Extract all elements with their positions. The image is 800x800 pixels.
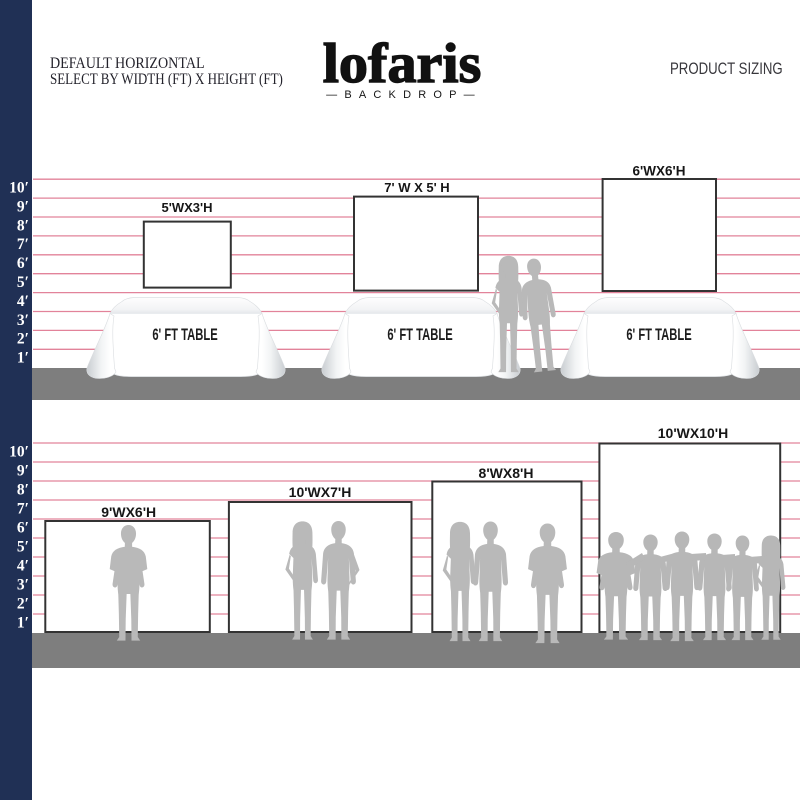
svg-text:5'WX3'H: 5'WX3'H	[162, 200, 213, 215]
svg-text:6' FT TABLE: 6' FT TABLE	[387, 326, 453, 345]
svg-text:8'WX8'H: 8'WX8'H	[479, 465, 534, 481]
svg-text:10'WX10'H: 10'WX10'H	[658, 425, 728, 441]
svg-text:10′: 10′	[9, 180, 29, 197]
svg-text:4′: 4′	[17, 557, 29, 574]
svg-text:1′: 1′	[17, 614, 29, 631]
svg-text:10'WX7'H: 10'WX7'H	[289, 484, 352, 500]
svg-text:6'WX6'H: 6'WX6'H	[633, 164, 686, 179]
svg-text:4′: 4′	[17, 293, 29, 310]
svg-text:10′: 10′	[9, 443, 29, 460]
svg-text:5′: 5′	[17, 538, 29, 555]
svg-text:6' FT TABLE: 6' FT TABLE	[626, 326, 692, 345]
svg-text:PRODUCT SIZING: PRODUCT SIZING	[670, 60, 783, 79]
svg-text:7' W X 5' H: 7' W X 5' H	[384, 180, 449, 195]
svg-text:6′: 6′	[17, 255, 29, 272]
svg-text:8′: 8′	[17, 217, 29, 234]
svg-text:DEFAULT HORIZONTAL: DEFAULT HORIZONTAL	[50, 55, 205, 72]
svg-text:1′: 1′	[17, 350, 29, 367]
svg-text:3′: 3′	[17, 312, 29, 329]
svg-text:—BACKDROP—: —BACKDROP—	[326, 89, 482, 101]
svg-text:2′: 2′	[17, 595, 29, 612]
svg-text:8′: 8′	[17, 481, 29, 498]
svg-text:9′: 9′	[17, 462, 29, 479]
svg-text:9′: 9′	[17, 198, 29, 215]
svg-text:SELECT BY WIDTH (FT) X HEIGHT: SELECT BY WIDTH (FT) X HEIGHT (FT)	[50, 71, 283, 89]
svg-text:6' FT TABLE: 6' FT TABLE	[152, 326, 218, 345]
svg-text:lofaris: lofaris	[323, 33, 482, 95]
svg-text:3′: 3′	[17, 576, 29, 593]
svg-text:5′: 5′	[17, 274, 29, 291]
svg-text:6′: 6′	[17, 519, 29, 536]
svg-text:9'WX6'H: 9'WX6'H	[101, 504, 156, 520]
svg-text:7′: 7′	[17, 236, 29, 253]
svg-text:7′: 7′	[17, 500, 29, 517]
svg-text:2′: 2′	[17, 331, 29, 348]
